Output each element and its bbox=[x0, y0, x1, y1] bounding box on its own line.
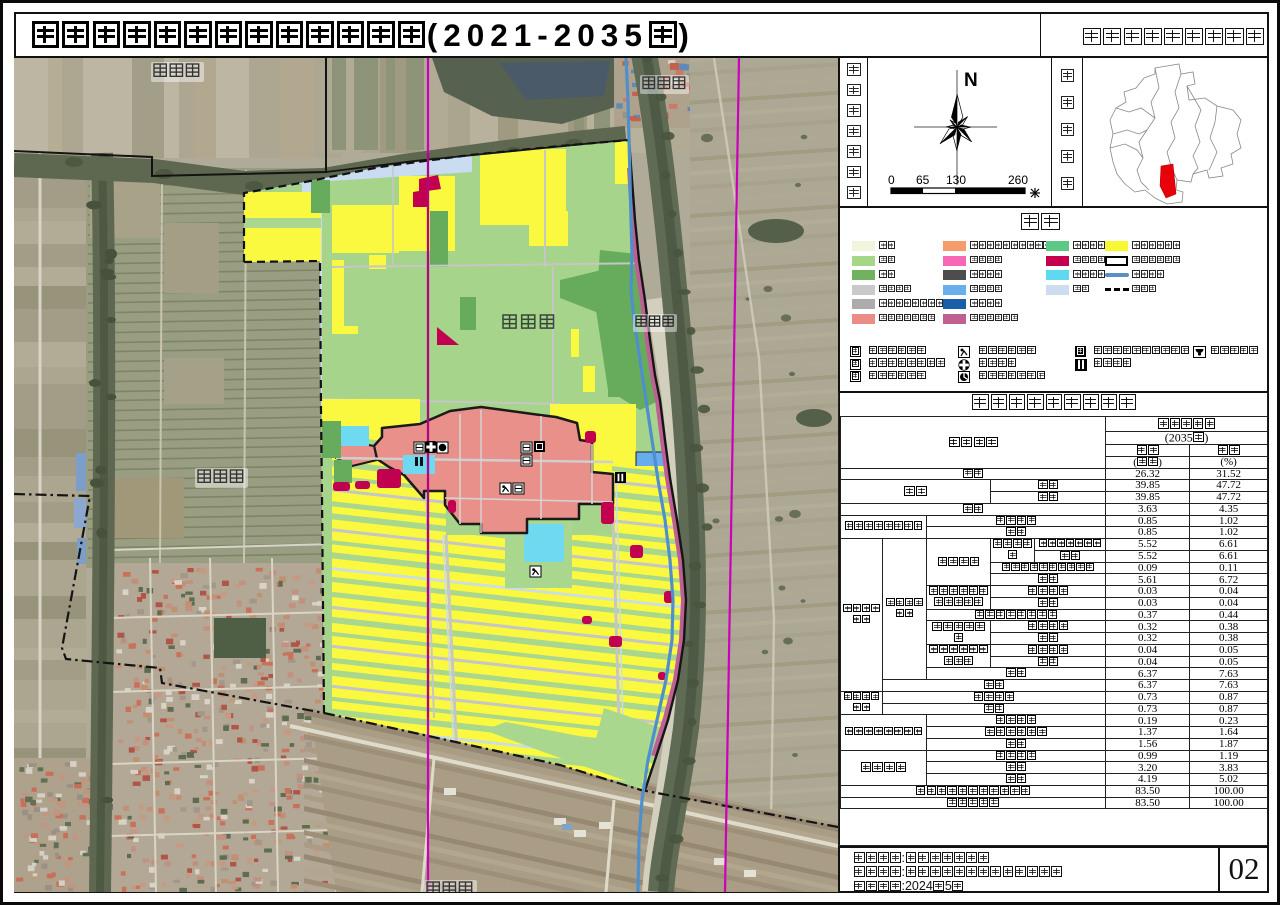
svg-text:260: 260 bbox=[1008, 173, 1028, 187]
svg-text:N: N bbox=[964, 70, 978, 91]
svg-text:0: 0 bbox=[888, 173, 895, 187]
svg-text:130: 130 bbox=[946, 173, 966, 187]
svg-text:65: 65 bbox=[916, 173, 930, 187]
